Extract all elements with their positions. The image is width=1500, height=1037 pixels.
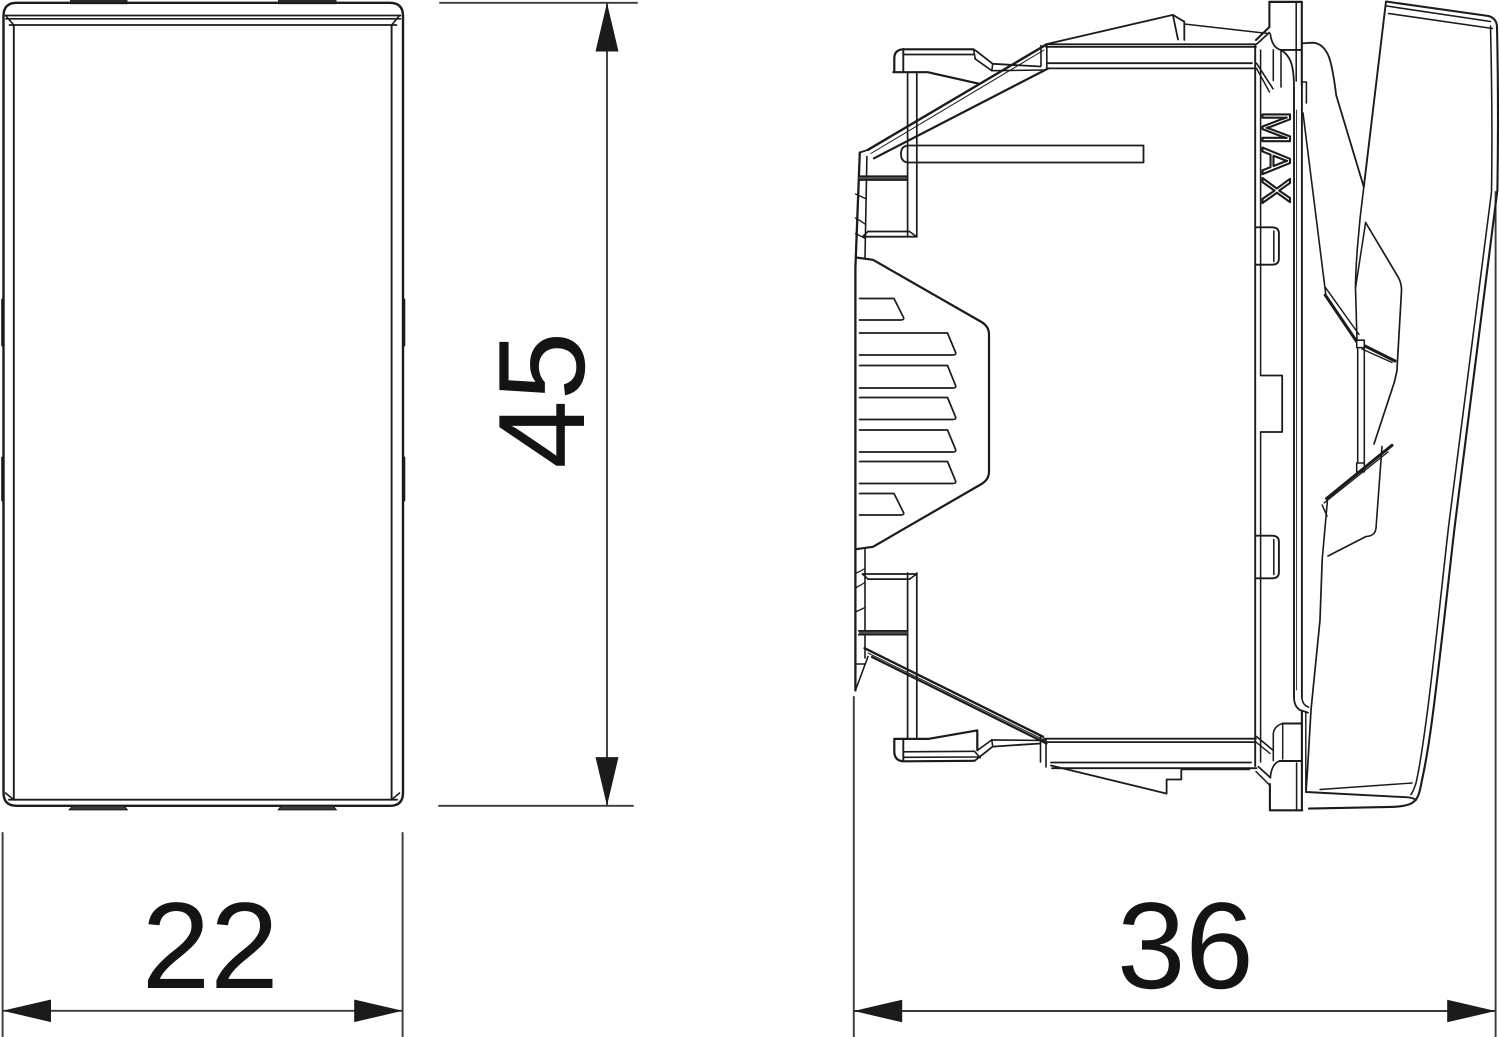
svg-text:45: 45 — [474, 332, 611, 469]
svg-text:MAX: MAX — [1254, 111, 1298, 207]
svg-text:36: 36 — [1117, 878, 1254, 1015]
svg-text:22: 22 — [142, 878, 279, 1015]
